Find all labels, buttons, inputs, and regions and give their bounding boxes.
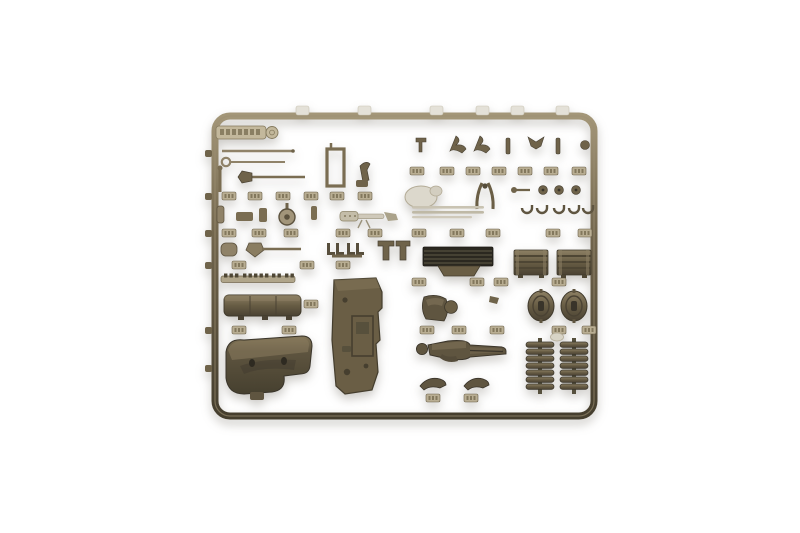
louvered-grille-part xyxy=(423,247,493,276)
pliers-part xyxy=(477,183,493,209)
spring-stack-parts xyxy=(526,333,588,394)
oval-hatch-parts xyxy=(528,289,587,323)
cleaning-rod-parts xyxy=(412,206,484,218)
small-bracket-parts xyxy=(416,136,590,154)
stowage-crate-parts xyxy=(514,250,591,278)
figure-torso-bust xyxy=(422,295,499,321)
brand-tag xyxy=(216,126,278,139)
shackle-hook-parts xyxy=(522,205,593,213)
hub-disc-parts xyxy=(511,186,580,195)
sprue-parts-tree xyxy=(205,106,596,416)
photo-canvas xyxy=(0,0,800,533)
thin-rod-parts xyxy=(218,149,295,192)
axe-part xyxy=(238,171,305,183)
shovel-parts xyxy=(221,243,301,257)
frame-left-nubs xyxy=(205,150,212,372)
boot-pair-parts xyxy=(327,243,364,256)
large-hull-panel xyxy=(332,278,382,394)
arm-parts xyxy=(420,378,489,390)
cylinder-part xyxy=(217,206,267,223)
pistol-part xyxy=(356,162,370,187)
toothed-rack-strip xyxy=(221,274,295,283)
curved-engine-cowl xyxy=(226,336,312,400)
seat-tee-parts xyxy=(378,241,410,260)
machine-gun-part xyxy=(340,212,398,229)
standing-soldier-figure xyxy=(416,341,506,363)
long-stowage-bin xyxy=(224,295,301,320)
canteen-blob-part xyxy=(405,186,442,208)
product-photo xyxy=(0,0,800,533)
